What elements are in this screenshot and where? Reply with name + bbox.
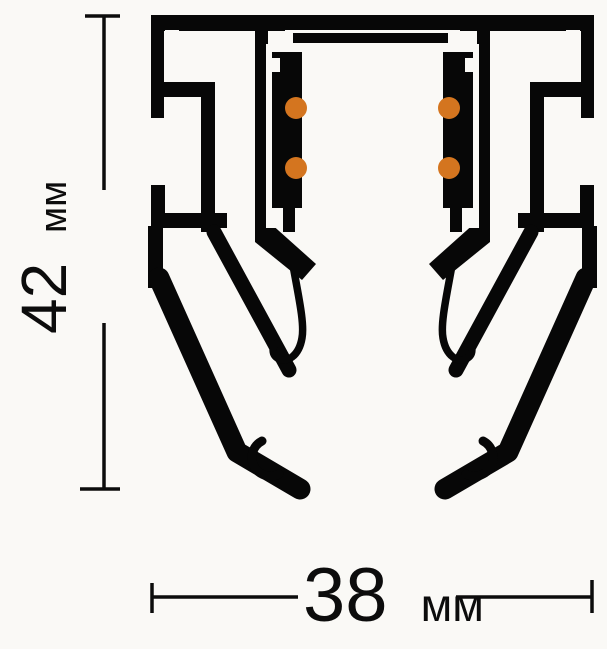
cap-notch [165,30,179,42]
top-insert-plate [293,33,448,43]
track-insert [266,44,312,232]
dimension-width-unit: мм [421,579,484,631]
side-inner-bar [201,82,215,232]
dimension-height-value: 42 [8,263,80,334]
conductor-dot-icon [285,97,307,119]
conductor-dot-icon [285,157,307,179]
side-wall-upper [151,15,164,118]
dimension-width-value: 38 [303,553,388,638]
conductor-body [272,52,302,208]
conductor-body-stub [283,205,295,232]
drawing-canvas: 42 мм 38 мм [0,0,607,649]
dimension-height-unit: мм [33,181,75,233]
top-cap-bar [152,15,593,31]
conductor-body-notch [272,58,280,72]
side-wall-stub [151,185,165,215]
profile-cross-section-drawing: 42 мм 38 мм [0,0,607,649]
